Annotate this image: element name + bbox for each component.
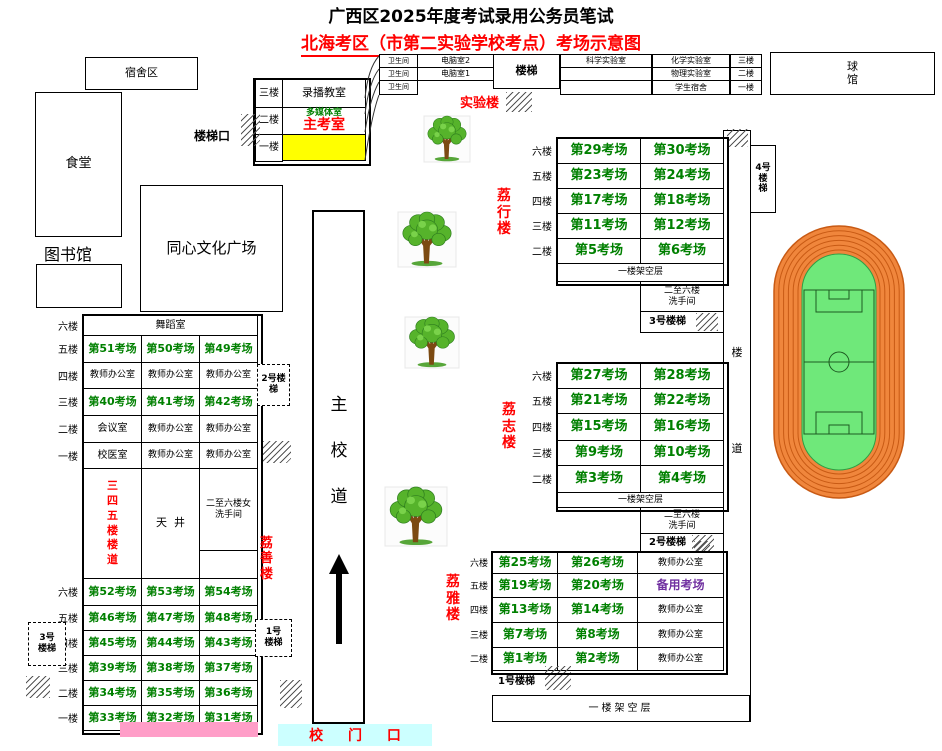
liya-floor-label: 五楼: [462, 573, 491, 597]
lishan-bottom-cell: 第46考场: [83, 605, 142, 631]
lishan-top-cell: 第42考场: [199, 388, 258, 416]
lixing-cell: 第24考场: [640, 163, 724, 189]
lixing-floor-label: 二楼: [522, 238, 555, 263]
lishan-top-cell: 舞蹈室: [83, 315, 258, 336]
lixing-cell: 第12考场: [640, 213, 724, 239]
recording-room: 录播教室: [282, 79, 366, 108]
lab-restroom-cell: 卫生间: [379, 67, 418, 81]
main-building-floor-label: 三楼: [255, 79, 283, 108]
school-gate-bar: 校 门 口: [278, 724, 432, 746]
lizhi-ground-cell: 一楼架空层: [557, 492, 724, 508]
lixing-floor-label: 四楼: [522, 188, 555, 213]
lizhi-cell: 第22考场: [640, 388, 724, 414]
liya-cell: 第19考场: [492, 573, 558, 598]
lixing-cell: 第18考场: [640, 188, 724, 214]
ball-hall: 球 馆: [770, 52, 935, 95]
page-subtitle: 北海考区（市第二实验学校考点）考场示意图: [0, 29, 942, 54]
stair1-dashed-box: 1号 楼梯: [255, 619, 292, 657]
lishan-top-cell: 教师办公室: [199, 362, 258, 389]
liya-cell: 教师办公室: [637, 622, 724, 648]
building-name-lixing: 荔 行 楼: [495, 188, 513, 242]
lishan-bottom-cell: 第44考场: [141, 630, 200, 656]
corridor-line: [750, 130, 751, 722]
liya-cell: 第20考场: [557, 573, 638, 598]
lishan-bottom-cell: 第54考场: [199, 578, 258, 606]
lizhi-floor-label: 三楼: [522, 440, 555, 465]
liya-cell: 第7考场: [492, 622, 558, 648]
lishan-washroom: 二至六楼女 洗手间: [199, 468, 258, 551]
tree-icon: [405, 317, 459, 368]
chief-exam-office: 多媒体室主考室: [282, 107, 366, 135]
lishan-top-cell: 第41考场: [141, 388, 200, 416]
lizhi-cell: 第16考场: [640, 413, 724, 441]
main-road-label: 校: [322, 436, 356, 458]
lizhi-cell: 第10考场: [640, 440, 724, 466]
pink-walkway: [120, 722, 258, 737]
lishan-top-floor-label: 一楼: [48, 442, 81, 468]
lishan-bottom-cell: 第53考场: [141, 578, 200, 606]
lab-room-cell: 学生宿舍: [652, 80, 730, 95]
lishan-bottom-cell: 第34考场: [83, 680, 142, 706]
lishan-bottom-cell: 第52考场: [83, 578, 142, 606]
lixing-cell: 第23考场: [557, 163, 641, 189]
lishan-bottom-floor-label: 二楼: [48, 680, 81, 705]
liya-cell: 第26考场: [557, 552, 638, 574]
stair3-hatch: [26, 676, 50, 698]
dorm-area: 宿舍区: [85, 57, 198, 90]
lizhi-cell: 第3考场: [557, 465, 641, 493]
lizhi-floor-label: 六楼: [522, 363, 555, 388]
canteen: 食堂: [35, 92, 122, 237]
lizhi-floor-label: 五楼: [522, 388, 555, 413]
lizhi-cell: 第15考场: [557, 413, 641, 441]
lizhi-cell: 第9考场: [557, 440, 641, 466]
lishan-top-cell: 第51考场: [83, 335, 142, 363]
stair-exit-label: 楼梯口: [194, 127, 240, 141]
lixing-cell: 第5考场: [557, 238, 641, 264]
lishan-empty-cell: [199, 550, 258, 579]
main-building-yellow-room: [282, 134, 366, 161]
liya-floor-label: 二楼: [462, 647, 491, 670]
lixing-cell: 第11考场: [557, 213, 641, 239]
lizhi-floor-label: 四楼: [522, 413, 555, 440]
lizhi-cell: 第4考场: [640, 465, 724, 493]
lishan-bottom-floor-label: 六楼: [48, 578, 81, 605]
liya-cell: 第8考场: [557, 622, 638, 648]
stair2-dashed-box: 2号楼 梯: [257, 364, 290, 406]
stair4-hatch: [727, 129, 748, 147]
road-arrow-head: [329, 554, 349, 574]
lixing-cell: 第29考场: [557, 138, 641, 164]
lixing-washroom: 二至六楼 洗手间: [640, 281, 724, 312]
main-road-label: 主: [322, 390, 356, 412]
lishan-corridor-345: 三 四 五 楼 楼 道: [83, 468, 142, 579]
liya-cell: 教师办公室: [637, 647, 724, 671]
library-annex: [36, 264, 122, 308]
main-road: [312, 210, 365, 724]
liya-top-hatch: [694, 541, 710, 552]
lishan-bottom-floor-label: 一楼: [48, 705, 81, 730]
lizhi-washroom: 二至六楼 洗手间: [640, 507, 724, 534]
lishan-bottom-cell: 第39考场: [83, 655, 142, 681]
campus-map: 广西区2025年度考试录用公务员笔试 北海考区（市第二实验学校考点）考场示意图 …: [0, 0, 942, 751]
tree-icon: [385, 487, 447, 546]
liya-cell: 教师办公室: [637, 552, 724, 574]
chief-exam-room-label: 主考室: [303, 118, 345, 133]
lizhi-floor-label: 二楼: [522, 465, 555, 492]
main-road-label: 道: [322, 482, 356, 504]
page-title: 广西区2025年度考试录用公务员笔试: [0, 2, 942, 27]
lab-room-cell: 物理实验室: [652, 67, 730, 81]
liya-cell: 第25考场: [492, 552, 558, 574]
liya-cell: 第14考场: [557, 597, 638, 623]
lab-room-cell: [560, 80, 652, 95]
lixing-cell: 第6考场: [640, 238, 724, 264]
lishan-top-cell: 第49考场: [199, 335, 258, 363]
liya-cell: 教师办公室: [637, 597, 724, 623]
lizhi-cell: 第21考场: [557, 388, 641, 414]
lixing-floor-label: 五楼: [522, 163, 555, 188]
liya-cell: 备用考场: [637, 573, 724, 598]
lixing-ground-cell: 一楼架空层: [557, 263, 724, 282]
lishan-bottom-cell: 第36考场: [199, 680, 258, 706]
lixing-cell: 第17考场: [557, 188, 641, 214]
lixing-cell: 第30考场: [640, 138, 724, 164]
lishan-bottom-cell: 第38考场: [141, 655, 200, 681]
liya-stair-hatch: [545, 666, 571, 690]
lab-floor-label: 二楼: [730, 67, 762, 81]
road-arrow-shaft: [336, 572, 342, 644]
lixing-floor-label: 三楼: [522, 213, 555, 238]
lishan-patio: 天 井: [141, 468, 200, 579]
lishan-bottom-cell: 第48考场: [199, 605, 258, 631]
lishan-top-cell: 校医室: [83, 442, 142, 469]
lab-floor-label: 三楼: [730, 54, 762, 68]
lishan-bottom-cell: 第35考场: [141, 680, 200, 706]
lab-stair-cell: 楼梯: [493, 54, 560, 89]
lab-room-cell: 科学实验室: [560, 54, 652, 68]
building-name-lishan: 荔 善 楼: [258, 536, 275, 587]
lishan-top-cell: 教师办公室: [141, 442, 200, 469]
liya-ground: 一楼架空层: [492, 695, 750, 722]
lishan-top-cell: 教师办公室: [83, 362, 142, 389]
tree-icon: [424, 116, 470, 162]
lab-floor-label: 一楼: [730, 80, 762, 95]
lishan-top-floor-label: 二楼: [48, 415, 81, 442]
corridor-label: 楼: [724, 344, 750, 360]
stair4-box: 4号 楼 梯: [750, 145, 776, 213]
lab-computer-room: 电脑室2: [417, 54, 494, 68]
lishan-top-floor-label: 六楼: [48, 315, 81, 335]
lishan-top-cell: 教师办公室: [141, 362, 200, 389]
lixing-floor-label: 六楼: [522, 138, 555, 163]
lab-room-cell: 化学实验室: [652, 54, 730, 68]
lishan-top-cell: 第40考场: [83, 388, 142, 416]
lishan-bottom-cell: 第37考场: [199, 655, 258, 681]
lishan-bottom-cell: 第47考场: [141, 605, 200, 631]
tree-icon: [398, 212, 456, 267]
culture-plaza: 同心文化广场: [140, 185, 283, 312]
lishan-top-floor-label: 四楼: [48, 362, 81, 388]
stair3-dashed-box: 3号 楼梯: [28, 622, 66, 666]
liya-cell: 第13考场: [492, 597, 558, 623]
header: 广西区2025年度考试录用公务员笔试 北海考区（市第二实验学校考点）考场示意图: [0, 2, 942, 54]
building-name-lizhi: 荔 志 楼: [500, 402, 518, 456]
stair2-hatch: [263, 441, 291, 463]
lishan-top-cell: 教师办公室: [199, 442, 258, 469]
lishan-top-cell: 教师办公室: [199, 415, 258, 443]
library-label: 图书馆: [44, 241, 108, 261]
subtitle-rest: 考场示意图: [556, 34, 641, 54]
stair-exit-hatch: [241, 114, 260, 146]
lishan-top-floor-label: 五楼: [48, 335, 81, 362]
lishan-bottom-cell: 第45考场: [83, 630, 142, 656]
running-track: [772, 222, 912, 507]
lixing-stair-hatch: [696, 313, 718, 331]
liya-floor-label: 三楼: [462, 622, 491, 647]
lishan-bottom-cell: 第43考场: [199, 630, 258, 656]
lizhi-cell: 第28考场: [640, 363, 724, 389]
lab-room-cell: [560, 67, 652, 81]
lishan-top-floor-label: 三楼: [48, 388, 81, 415]
lab-building-label: 实验楼: [460, 92, 520, 108]
lab-restroom-cell: 卫生间: [379, 54, 418, 68]
liya-floor-label: 六楼: [462, 552, 491, 573]
lab-restroom-cell: 卫生间: [379, 80, 418, 95]
building-name-liya: 荔 雅 楼: [444, 574, 462, 628]
lishan-top-cell: 会议室: [83, 415, 142, 443]
corridor-label: 道: [724, 440, 750, 456]
stair1-hatch: [280, 680, 302, 708]
lishan-top-cell: 教师办公室: [141, 415, 200, 443]
lishan-top-cell: 第50考场: [141, 335, 200, 363]
lab-computer-room: 电脑室1: [417, 67, 494, 81]
lizhi-cell: 第27考场: [557, 363, 641, 389]
liya-floor-label: 四楼: [462, 597, 491, 622]
